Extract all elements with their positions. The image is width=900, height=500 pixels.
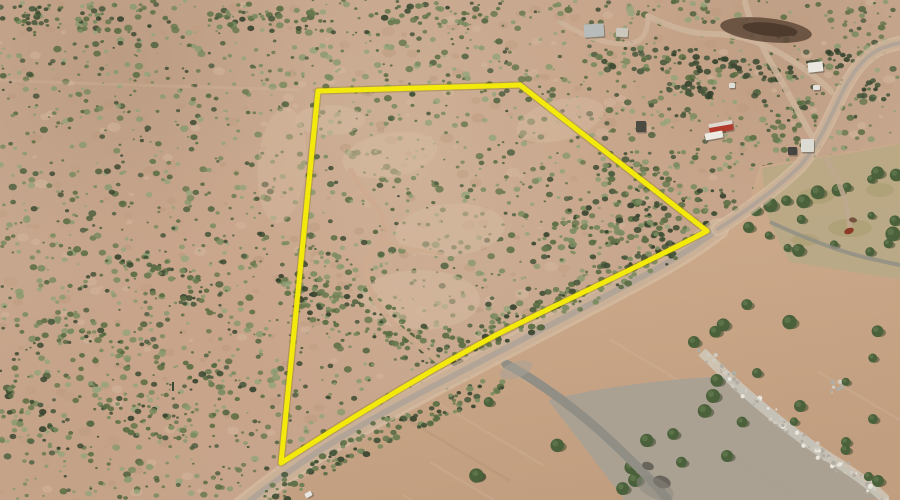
small-shed bbox=[616, 28, 630, 39]
dark-truck-2 bbox=[788, 147, 798, 157]
aerial-photo-canvas bbox=[0, 0, 900, 500]
dark-truck bbox=[636, 121, 647, 134]
bare-clearing bbox=[295, 105, 365, 135]
white-object bbox=[729, 83, 736, 90]
white-shed bbox=[808, 61, 825, 74]
white-rv-2 bbox=[801, 139, 815, 154]
white-object-2 bbox=[813, 85, 821, 92]
aerial-photo bbox=[0, 0, 900, 500]
cactus bbox=[172, 382, 174, 391]
house-gray-roof bbox=[584, 23, 606, 39]
